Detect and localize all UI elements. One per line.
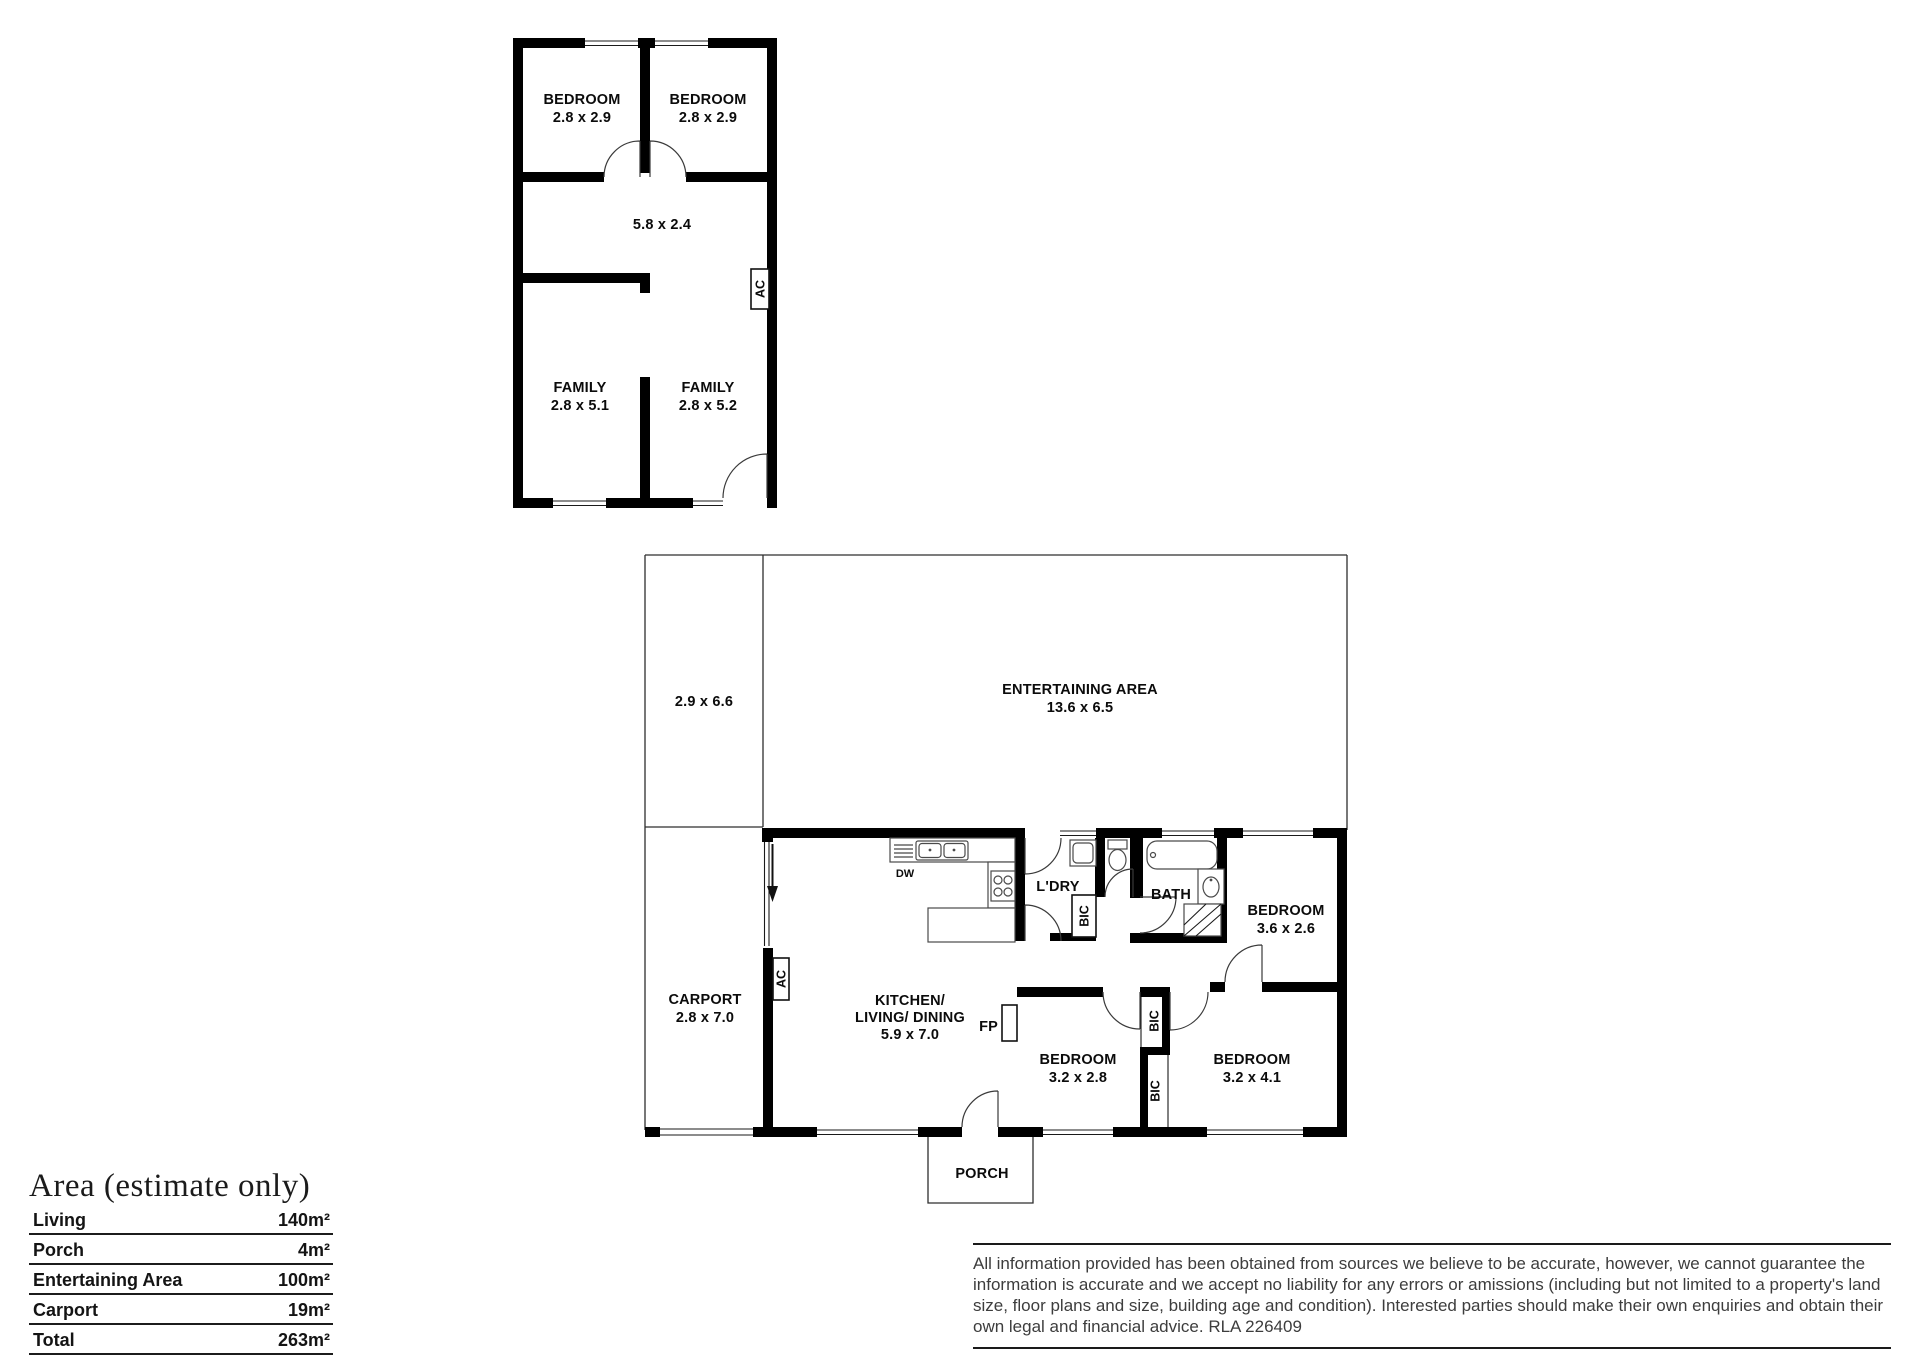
kitchen-ac-label: AC (775, 970, 789, 988)
disclaimer-text: All information provided has been obtain… (973, 1243, 1891, 1349)
bedroom-mid-window (1043, 1127, 1113, 1137)
wc-bath-wall (1130, 838, 1143, 898)
outbuilding-ac-label: AC (754, 280, 768, 298)
kitchen-ac-unit: AC (773, 958, 789, 1000)
wc-door-arc (1105, 869, 1133, 897)
outbuilding-wall-stub (640, 273, 650, 293)
kitchen-label-line1: KITCHEN/ (875, 993, 945, 1009)
table-row: Living 140m² (29, 1205, 333, 1235)
outbuilding-family-wall (523, 273, 650, 283)
outbuilding-family-divider-wall (640, 377, 650, 508)
bath-label: BATH (1151, 887, 1191, 903)
area-row-value: 263m² (278, 1330, 330, 1351)
area-row-value: 4m² (298, 1240, 330, 1261)
outbuilding-hall-wall-left (523, 172, 604, 182)
kitchen-laundry-wall (1015, 838, 1025, 941)
floorplan-page: AC BEDROOM 2.8 x 2.9 BEDROOM 2.8 x 2.9 5… (0, 0, 1920, 1359)
bedroom-right-door-arc (1170, 992, 1208, 1030)
kitchen-dims: 5.9 x 7.0 (881, 1027, 939, 1043)
bedroom-top-dims: 3.6 x 2.6 (1257, 921, 1315, 937)
area-row-value: 19m² (288, 1300, 330, 1321)
bedroom-mid-top-wall (1017, 987, 1103, 997)
carport-dims: 2.8 x 7.0 (676, 1010, 734, 1026)
carport-open-side (660, 1127, 753, 1137)
outbuilding-window-top-right (655, 38, 708, 48)
porch-label: PORCH (955, 1166, 1008, 1182)
area-row-label: Carport (33, 1300, 98, 1321)
dishwasher-label: DW (896, 868, 915, 880)
table-row: Entertaining Area 100m² (29, 1265, 333, 1295)
bathtub (1147, 841, 1217, 869)
laundry-bic-label: BIC (1078, 905, 1092, 927)
outbuilding-window-top-left (585, 38, 638, 48)
bic-bottom-label: BIC (1149, 1080, 1163, 1102)
bedroom-top-label: BEDROOM (1247, 903, 1324, 919)
laundry-bic-cupboard: BIC (1072, 895, 1096, 937)
laundry-label: L'DRY (1036, 879, 1080, 895)
bedroom-mid-label: BEDROOM (1039, 1052, 1116, 1068)
outbuilding-family1-dims: 2.8 x 5.1 (551, 398, 609, 414)
bedroom-right-dims: 3.2 x 4.1 (1223, 1070, 1281, 1086)
carport-screen-line (765, 842, 770, 946)
main-house-plan: AC BIC BIC BIC (645, 555, 1347, 1203)
floorplan-drawing: AC BEDROOM 2.8 x 2.9 BEDROOM 2.8 x 2.9 5… (0, 0, 1920, 1359)
basin (1198, 869, 1224, 904)
outbuilding-hall-dims: 5.8 x 2.4 (633, 217, 691, 233)
fireplace-label: FP (979, 1019, 998, 1035)
living-window (817, 1127, 918, 1137)
carport-wall-stub (762, 828, 773, 842)
entertaining-dims: 13.6 x 6.5 (1047, 700, 1114, 716)
outbuilding-family1-label: FAMILY (553, 380, 606, 396)
area-row-label: Entertaining Area (33, 1270, 182, 1291)
outbuilding-window-bottom-right (693, 498, 723, 508)
outbuilding-bedroom1-label: BEDROOM (543, 92, 620, 108)
laundry-window (1060, 828, 1096, 838)
bedroom-mid-door-arc (1103, 992, 1140, 1029)
left-area-dims: 2.9 x 6.6 (675, 694, 733, 710)
outbuilding-hall-wall-right (686, 172, 767, 182)
bic-top-label: BIC (1148, 1010, 1162, 1032)
outbuilding-plan: AC BEDROOM 2.8 x 2.9 BEDROOM 2.8 x 2.9 5… (513, 38, 777, 508)
front-door-arc (962, 1091, 998, 1127)
area-row-label: Porch (33, 1240, 84, 1261)
table-row: Total 263m² (29, 1325, 333, 1355)
carport-kitchen-wall (763, 948, 773, 1127)
outbuilding-bedroom-divider-wall (640, 48, 650, 173)
table-row: Carport 19m² (29, 1295, 333, 1325)
carport-label: CARPORT (668, 992, 741, 1008)
outbuilding-family2-dims: 2.8 x 5.2 (679, 398, 737, 414)
area-row-value: 140m² (278, 1210, 330, 1231)
area-row-value: 100m² (278, 1270, 330, 1291)
outbuilding-bedroom1-dims: 2.8 x 2.9 (553, 110, 611, 126)
bedroom-right-label: BEDROOM (1213, 1052, 1290, 1068)
fireplace: FP (979, 1005, 1017, 1041)
house-right-wall (1337, 828, 1347, 1137)
laundry-entry-door-arc (1025, 838, 1061, 874)
stove-cooktop (991, 871, 1015, 901)
area-row-label: Total (33, 1330, 75, 1351)
area-table-title: Area (estimate only) (29, 1168, 333, 1205)
outbuilding-bedroom2-label: BEDROOM (669, 92, 746, 108)
area-summary-table: Area (estimate only) Living 140m² Porch … (29, 1168, 333, 1355)
outbuilding-window-bottom-left (553, 498, 606, 508)
outbuilding-bedroom2-dims: 2.8 x 2.9 (679, 110, 737, 126)
outbuilding-family2-label: FAMILY (681, 380, 734, 396)
table-row: Porch 4m² (29, 1235, 333, 1265)
bedroom-top-door-arc (1225, 945, 1262, 982)
bedroom-top-window (1243, 828, 1313, 838)
outbuilding-ac-unit: AC (751, 269, 769, 309)
entertaining-label: ENTERTAINING AREA (1002, 682, 1158, 698)
shower (1184, 904, 1221, 936)
laundry-tub (1070, 840, 1096, 866)
toilet (1108, 840, 1127, 871)
bic-top-wall (1140, 987, 1170, 997)
kitchen-label-line2: LIVING/ DINING (855, 1010, 965, 1026)
bedroom-right-window (1207, 1127, 1303, 1137)
bic-cupboards: BIC BIC (1140, 997, 1170, 1127)
area-row-label: Living (33, 1210, 86, 1231)
bedroom-mid-dims: 3.2 x 2.8 (1049, 1070, 1107, 1086)
bath-window (1162, 828, 1214, 838)
